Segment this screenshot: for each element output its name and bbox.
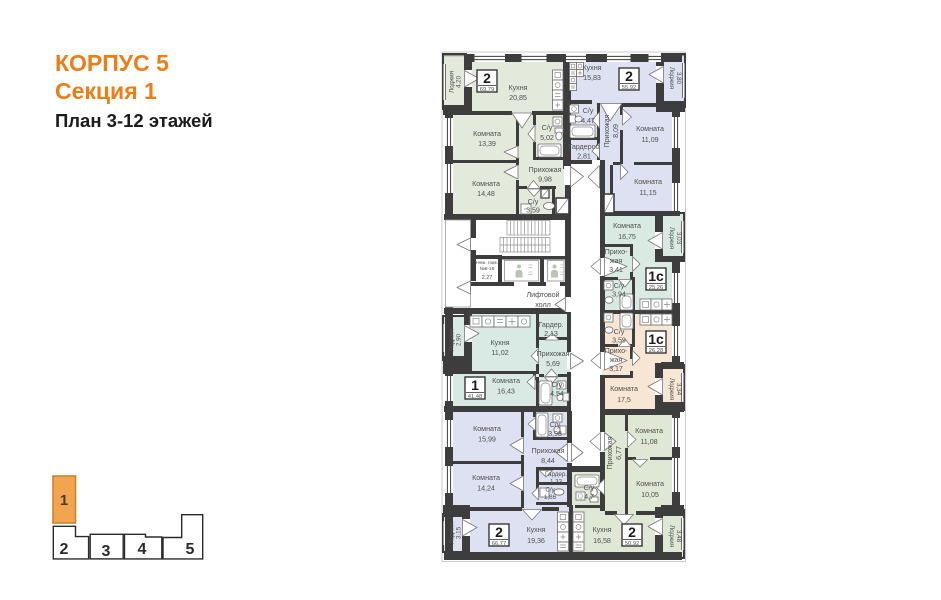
svg-text:Комната: Комната	[634, 177, 662, 186]
svg-text:11,09: 11,09	[641, 135, 658, 144]
svg-text:2: 2	[60, 541, 69, 558]
svg-text:6,77: 6,77	[614, 446, 623, 460]
svg-text:55,92: 55,92	[622, 85, 637, 91]
svg-text:5: 5	[186, 541, 195, 558]
svg-text:3: 3	[102, 543, 111, 560]
svg-text:10,05: 10,05	[641, 490, 659, 499]
svg-text:1: 1	[60, 492, 68, 509]
svg-text:жая: жая	[610, 256, 623, 265]
svg-text:1с: 1с	[648, 331, 664, 347]
svg-text:Прихожая: Прихожая	[605, 436, 614, 469]
svg-text:4,47: 4,47	[581, 116, 595, 125]
svg-text:5,69: 5,69	[546, 359, 560, 368]
svg-text:17,5: 17,5	[617, 395, 631, 404]
svg-text:Лоджия: Лоджия	[668, 525, 675, 547]
svg-text:Лоджия: Лоджия	[668, 227, 675, 249]
svg-text:3,98: 3,98	[548, 429, 562, 438]
svg-text:Кухня: Кухня	[583, 63, 602, 72]
svg-text:3,41: 3,41	[609, 265, 623, 274]
svg-text:16,75: 16,75	[618, 232, 636, 241]
svg-text:Кухня: Кухня	[593, 525, 612, 534]
svg-text:5,02: 5,02	[540, 133, 554, 142]
svg-text:19,36: 19,36	[527, 536, 545, 545]
svg-text:Комната: Комната	[636, 479, 664, 488]
svg-text:Кухня: Кухня	[491, 338, 510, 347]
svg-text:Неж. пом.: Неж. пом.	[476, 260, 498, 266]
svg-text:41,48: 41,48	[468, 394, 483, 400]
svg-text:3,34: 3,34	[675, 383, 682, 396]
svg-text:Кухня: Кухня	[527, 525, 546, 534]
svg-text:9,98: 9,98	[538, 175, 552, 184]
svg-text:Прихожая: Прихожая	[529, 165, 562, 174]
svg-text:Гардер.: Гардер.	[545, 471, 567, 478]
svg-text:25,26: 25,26	[649, 285, 664, 291]
svg-text:16,58: 16,58	[593, 536, 611, 545]
svg-text:3,03: 3,03	[675, 232, 682, 245]
svg-text:Прихожая: Прихожая	[602, 114, 611, 147]
svg-text:2: 2	[625, 68, 633, 84]
svg-text:С/у: С/у	[542, 123, 553, 132]
svg-text:Лоджия: Лоджия	[668, 67, 675, 89]
svg-text:2,27: 2,27	[482, 275, 493, 281]
svg-text:3,48: 3,48	[675, 530, 682, 543]
svg-text:Комната: Комната	[492, 376, 520, 385]
svg-text:11,08: 11,08	[640, 437, 657, 446]
svg-text:Комната: Комната	[472, 473, 500, 482]
svg-text:С/у: С/у	[545, 487, 555, 494]
svg-text:2: 2	[483, 70, 491, 86]
svg-text:Лоджия: Лоджия	[668, 378, 675, 400]
svg-text:20,85: 20,85	[509, 93, 527, 102]
svg-text:2,90: 2,90	[456, 333, 463, 346]
svg-text:14,48: 14,48	[477, 189, 495, 198]
svg-text:11,15: 11,15	[639, 188, 656, 197]
svg-text:2,81: 2,81	[577, 152, 591, 161]
svg-text:холл: холл	[535, 300, 551, 309]
svg-text:С/у: С/у	[584, 483, 595, 492]
svg-text:13,39: 13,39	[478, 139, 496, 148]
svg-text:1,33: 1,33	[550, 479, 563, 486]
svg-text:3,80: 3,80	[675, 72, 682, 85]
svg-text:8,44: 8,44	[541, 456, 555, 465]
svg-text:1,86: 1,86	[544, 494, 557, 501]
svg-text:66,77: 66,77	[492, 541, 507, 547]
svg-text:15,83: 15,83	[583, 73, 601, 82]
svg-text:№8-18: №8-18	[480, 266, 495, 272]
svg-text:Прихо-: Прихо-	[605, 346, 628, 355]
svg-text:2: 2	[628, 524, 636, 540]
svg-text:Комната: Комната	[635, 426, 663, 435]
svg-text:Прихожая: Прихожая	[537, 349, 570, 358]
svg-text:Гардероб: Гардероб	[568, 142, 599, 151]
svg-text:16,43: 16,43	[497, 387, 515, 396]
svg-text:4,54: 4,54	[550, 389, 564, 398]
svg-text:Лоджия: Лоджия	[449, 522, 456, 544]
svg-text:4,20: 4,20	[456, 75, 463, 88]
svg-text:14,24: 14,24	[477, 484, 495, 493]
svg-text:8,09: 8,09	[611, 124, 620, 138]
svg-text:3,15: 3,15	[456, 526, 463, 539]
svg-text:4,7: 4,7	[584, 492, 594, 501]
svg-text:Лифтовой: Лифтовой	[526, 290, 559, 299]
svg-text:Комната: Комната	[473, 424, 501, 433]
svg-text:Комната: Комната	[473, 129, 501, 138]
svg-text:Прихожая: Прихожая	[532, 446, 565, 455]
svg-text:Гардер.: Гардер.	[538, 320, 563, 329]
svg-text:4: 4	[138, 541, 147, 558]
svg-text:26,28: 26,28	[649, 348, 664, 354]
svg-text:3,59: 3,59	[612, 336, 626, 345]
svg-text:2: 2	[495, 524, 503, 540]
svg-text:Лоджия: Лоджия	[449, 71, 456, 93]
svg-text:11,02: 11,02	[491, 348, 508, 357]
svg-text:С/у: С/у	[550, 420, 561, 429]
svg-text:3,59: 3,59	[526, 206, 540, 215]
svg-text:1с: 1с	[648, 268, 664, 284]
svg-text:Комната: Комната	[636, 124, 664, 133]
svg-text:Комната: Комната	[472, 179, 500, 188]
svg-text:69,79: 69,79	[480, 87, 495, 93]
svg-text:С/у: С/у	[583, 106, 594, 115]
svg-text:3,94: 3,94	[612, 290, 626, 299]
svg-text:Кухня: Кухня	[509, 83, 528, 92]
svg-text:Лоджия: Лоджия	[449, 329, 456, 351]
svg-text:2,13: 2,13	[544, 329, 558, 338]
svg-text:Комната: Комната	[610, 384, 638, 393]
svg-text:15,99: 15,99	[478, 435, 496, 444]
svg-text:жая: жая	[610, 355, 623, 364]
svg-text:Прихо-: Прихо-	[605, 247, 628, 256]
svg-text:50,92: 50,92	[625, 541, 640, 547]
svg-text:С/у: С/у	[552, 380, 563, 389]
svg-text:Комната: Комната	[613, 221, 641, 230]
svg-text:3,17: 3,17	[609, 364, 623, 373]
svg-text:1: 1	[471, 377, 479, 393]
